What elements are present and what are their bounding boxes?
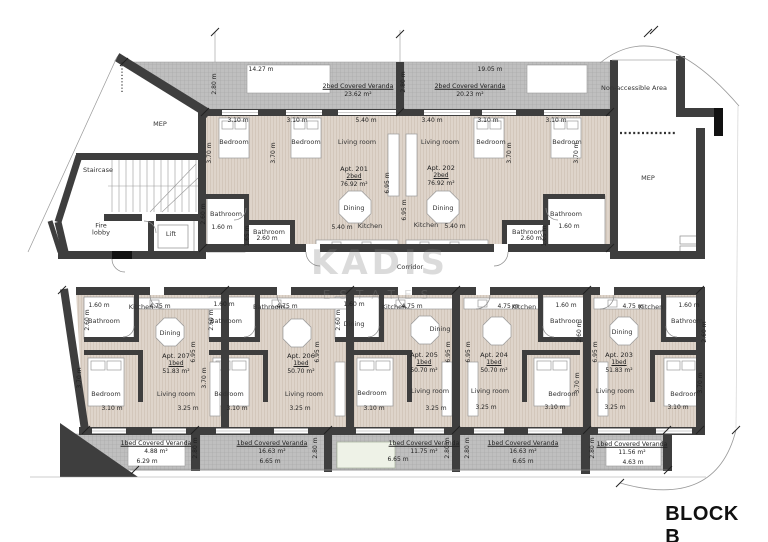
apartment-aid: Apt. 202 bbox=[427, 164, 455, 172]
veranda-dimension-label: 6.29 m bbox=[136, 459, 157, 465]
dimension-label: 3.25 m bbox=[604, 405, 625, 411]
dimension-label: 3.25 m bbox=[425, 406, 446, 412]
dimension-label: 2.60 m bbox=[702, 321, 708, 342]
veranda-title: 1bed Covered Veranda bbox=[389, 440, 460, 448]
dimension-label: 6.95 m bbox=[191, 341, 197, 362]
dimension-label: 3.70 m bbox=[698, 372, 704, 393]
dimension-label: 2.80 m bbox=[465, 437, 471, 458]
dimension-label: 3.10 m bbox=[227, 118, 248, 124]
room-label-bedroom: Bedroom bbox=[91, 391, 120, 398]
apartment-aarea: 50.70 m² bbox=[410, 367, 438, 375]
dimension-label: 5.40 m bbox=[331, 225, 352, 231]
apartment-label-apt-205: Apt. 2051bed50.70 m² bbox=[410, 351, 438, 375]
dimension-label: 1.65 m bbox=[245, 225, 251, 246]
apartment-atype: 1bed bbox=[287, 360, 315, 368]
dimension-label: 4.75 m bbox=[497, 304, 518, 310]
room-label-mep: MEP bbox=[641, 175, 655, 182]
veranda-title: 1bed Covered Veranda bbox=[237, 440, 308, 448]
veranda-label: 1bed Covered Veranda16.63 m² bbox=[237, 440, 308, 456]
watermark-logo: KADIS bbox=[311, 243, 449, 283]
dimension-label: 2.80 m bbox=[590, 437, 596, 458]
dimension-label: 1.60 m bbox=[558, 224, 579, 230]
dimension-label: 2.60 m bbox=[85, 309, 91, 330]
dimension-label: 1.60 m bbox=[343, 302, 364, 308]
veranda-dimension-label: 6.65 m bbox=[387, 457, 408, 463]
apartment-atype: 1bed bbox=[410, 359, 438, 367]
apartment-label-apt-201: Apt. 2012bed76.92 m² bbox=[340, 165, 368, 189]
apartment-aarea: 51.83 m² bbox=[605, 367, 633, 375]
veranda-dimension-label: 4.63 m bbox=[622, 460, 643, 466]
room-label-dining: Dining bbox=[160, 330, 181, 337]
apartment-atype: 2bed bbox=[340, 173, 368, 181]
apartment-label-apt-203: Apt. 2031bed51.83 m² bbox=[605, 351, 633, 375]
room-label-lift: Lift bbox=[166, 231, 176, 238]
dimension-label: 2.60 m bbox=[520, 236, 541, 242]
veranda-area: 16.63 m² bbox=[237, 448, 308, 456]
apartment-atype: 1bed bbox=[480, 359, 508, 367]
dimension-label: 6.95 m bbox=[593, 341, 599, 362]
dimension-label: 2.80 m bbox=[401, 71, 407, 92]
room-label-living-room: Living room bbox=[157, 391, 195, 398]
dimension-label: 2.60 m bbox=[209, 309, 215, 330]
apartment-aid: Apt. 203 bbox=[605, 351, 633, 359]
dimension-label: 5.40 m bbox=[355, 118, 376, 124]
veranda-label: 2bed Covered Veranda20.23 m² bbox=[435, 83, 506, 99]
room-label-living-room: Living room bbox=[596, 388, 634, 395]
dimension-label: 1.60 m bbox=[678, 303, 699, 309]
dimension-label: 1.60 m bbox=[555, 303, 576, 309]
veranda-dimension-label: 6.65 m bbox=[259, 459, 280, 465]
dimension-label: 3.70 m bbox=[574, 142, 580, 163]
veranda-title: 2bed Covered Veranda bbox=[435, 83, 506, 91]
dimension-label: 2.60 m bbox=[577, 321, 583, 342]
apartment-aarea: 50.70 m² bbox=[287, 368, 315, 376]
dimension-label: 6.95 m bbox=[385, 172, 391, 193]
dimension-label: 4.75 m bbox=[276, 304, 297, 310]
dimension-label: 5.40 m bbox=[444, 224, 465, 230]
room-label-living-room: Living room bbox=[421, 139, 459, 146]
veranda-label: 2bed Covered Veranda23.62 m² bbox=[323, 83, 394, 99]
dimension-label: 3.10 m bbox=[477, 118, 498, 124]
veranda-label: 1bed Covered Veranda11.56 m² bbox=[597, 441, 668, 457]
apartment-label-apt-207: Apt. 2071bed51.83 m² bbox=[162, 352, 190, 376]
dimension-label: 3.70 m bbox=[77, 367, 83, 388]
veranda-label: 1bed Covered Veranda4.88 m² bbox=[121, 440, 192, 456]
room-label-bedroom: Bedroom bbox=[291, 139, 320, 146]
room-label-bathroom: Bathroom bbox=[88, 318, 120, 325]
dimension-label: 6.95 m bbox=[315, 341, 321, 362]
apartment-label-apt-206: Apt. 2061bed50.70 m² bbox=[287, 352, 315, 376]
apartment-label-apt-204: Apt. 2041bed50.70 m² bbox=[480, 351, 508, 375]
dimension-label: 19.05 m bbox=[478, 67, 503, 73]
room-label-living-room: Living room bbox=[411, 388, 449, 395]
room-label-dining: Dining bbox=[344, 205, 365, 212]
veranda-label: 1bed Covered Veranda16.63 m² bbox=[488, 440, 559, 456]
apartment-aid: Apt. 204 bbox=[480, 351, 508, 359]
dimension-label: 4.75 m bbox=[622, 304, 643, 310]
dimension-label: 2.80 m bbox=[212, 73, 218, 94]
room-label-bedroom: Bedroom bbox=[476, 139, 505, 146]
apartment-aarea: 51.83 m² bbox=[162, 368, 190, 376]
veranda-area: 23.62 m² bbox=[323, 91, 394, 99]
room-label-dining: Dining bbox=[612, 329, 633, 336]
dimension-label: 3.10 m bbox=[545, 118, 566, 124]
dimension-label: 3.70 m bbox=[202, 367, 208, 388]
veranda-area: 11.75 m² bbox=[389, 448, 460, 456]
apartment-atype: 1bed bbox=[605, 359, 633, 367]
dimension-label: 4.75 m bbox=[149, 304, 170, 310]
dimension-label: 1.60 m bbox=[88, 303, 109, 309]
room-label-living-room: Living room bbox=[285, 391, 323, 398]
room-label-bathroom: Bathroom bbox=[550, 211, 582, 218]
apartment-aid: Apt. 205 bbox=[410, 351, 438, 359]
dimension-label: 6.95 m bbox=[402, 199, 408, 220]
dimension-label: 3.25 m bbox=[475, 405, 496, 411]
dimension-label: 3.10 m bbox=[286, 118, 307, 124]
dimension-label: 1.65 m bbox=[542, 225, 548, 246]
room-label-bedroom: Bedroom bbox=[357, 390, 386, 397]
room-label-dining: Dining bbox=[430, 326, 451, 333]
apartment-atype: 2bed bbox=[427, 172, 455, 180]
room-label-bedroom: Bedroom bbox=[670, 391, 699, 398]
dimension-label: 3.25 m bbox=[289, 406, 310, 412]
veranda-area: 16.63 m² bbox=[488, 448, 559, 456]
veranda-title: 2bed Covered Veranda bbox=[323, 83, 394, 91]
room-label-bathroom: Bathroom bbox=[671, 318, 703, 325]
dimension-label: 6.95 m bbox=[466, 341, 472, 362]
dimension-label: 3.25 m bbox=[177, 406, 198, 412]
dimension-label: 3.10 m bbox=[101, 406, 122, 412]
veranda-dimension-label: 6.65 m bbox=[512, 459, 533, 465]
apartment-atype: 1bed bbox=[162, 360, 190, 368]
dimension-label: 3.10 m bbox=[226, 406, 247, 412]
room-label-staircase: Staircase bbox=[83, 167, 113, 174]
veranda-title: 1bed Covered Veranda bbox=[488, 440, 559, 448]
apartment-aarea: 76.92 m² bbox=[340, 181, 368, 189]
dimension-label: 2.60 m bbox=[201, 203, 207, 224]
dimension-label: 2.60 m bbox=[256, 236, 277, 242]
apartment-aid: Apt. 201 bbox=[340, 165, 368, 173]
room-label-dining: Dining bbox=[344, 321, 365, 328]
dimension-label: 2.60 m bbox=[336, 309, 342, 330]
apartment-aid: Apt. 207 bbox=[162, 352, 190, 360]
room-label-dining: Dining bbox=[433, 205, 454, 212]
apartment-aid: Apt. 206 bbox=[287, 352, 315, 360]
dimension-label: 3.70 m bbox=[575, 372, 581, 393]
apartment-aarea: 76.92 m² bbox=[427, 180, 455, 188]
room-label-kitchen: Kitchen bbox=[358, 223, 382, 230]
dimension-label: 6.95 m bbox=[446, 341, 452, 362]
dimension-label: 14.27 m bbox=[249, 67, 274, 73]
floor-plan-canvas: KADIS ESTATES BLOCK B MEPStaircaseFire l… bbox=[0, 0, 768, 542]
veranda-area: 4.88 m² bbox=[121, 448, 192, 456]
room-label-living-room: Living room bbox=[471, 388, 509, 395]
room-label-mep: MEP bbox=[153, 121, 167, 128]
dimension-label: 3.70 m bbox=[507, 142, 513, 163]
dimension-label: 3.10 m bbox=[363, 406, 384, 412]
room-label-bedroom: Bedroom bbox=[214, 391, 243, 398]
dimension-label: 1.60 m bbox=[211, 225, 232, 231]
labels-layer: KADIS ESTATES BLOCK B MEPStaircaseFire l… bbox=[0, 0, 768, 542]
dimension-label: 3.10 m bbox=[667, 405, 688, 411]
room-label-bedroom: Bedroom bbox=[219, 139, 248, 146]
apartment-aarea: 50.70 m² bbox=[480, 367, 508, 375]
room-label-non-accessible-area: Non-accessible Area bbox=[601, 85, 667, 92]
veranda-title: 1bed Covered Veranda bbox=[121, 440, 192, 448]
dimension-label: 3.70 m bbox=[271, 142, 277, 163]
room-label-bathroom: Bathroom bbox=[210, 211, 242, 218]
room-label-kitchen: Kitchen bbox=[414, 222, 438, 229]
dimension-label: 3.40 m bbox=[421, 118, 442, 124]
veranda-label: 1bed Covered Veranda11.75 m² bbox=[389, 440, 460, 456]
room-label-corridor: Corridor bbox=[397, 264, 423, 271]
dimension-label: 4.75 m bbox=[401, 304, 422, 310]
veranda-title: 1bed Covered Veranda bbox=[597, 441, 668, 449]
watermark-subtitle: ESTATES bbox=[323, 288, 437, 302]
veranda-area: 20.23 m² bbox=[435, 91, 506, 99]
block-title: BLOCK B bbox=[665, 503, 739, 542]
dimension-label: 3.10 m bbox=[544, 405, 565, 411]
dimension-label: 2.80 m bbox=[193, 437, 199, 458]
apartment-label-apt-202: Apt. 2022bed76.92 m² bbox=[427, 164, 455, 188]
dimension-label: 1.60 m bbox=[213, 302, 234, 308]
dimension-label: 2.80 m bbox=[313, 437, 319, 458]
room-label-living-room: Living room bbox=[338, 139, 376, 146]
room-label-fire-lobby: Fire lobby bbox=[88, 223, 114, 238]
veranda-area: 11.56 m² bbox=[597, 449, 668, 457]
dimension-label: 3.70 m bbox=[207, 142, 213, 163]
